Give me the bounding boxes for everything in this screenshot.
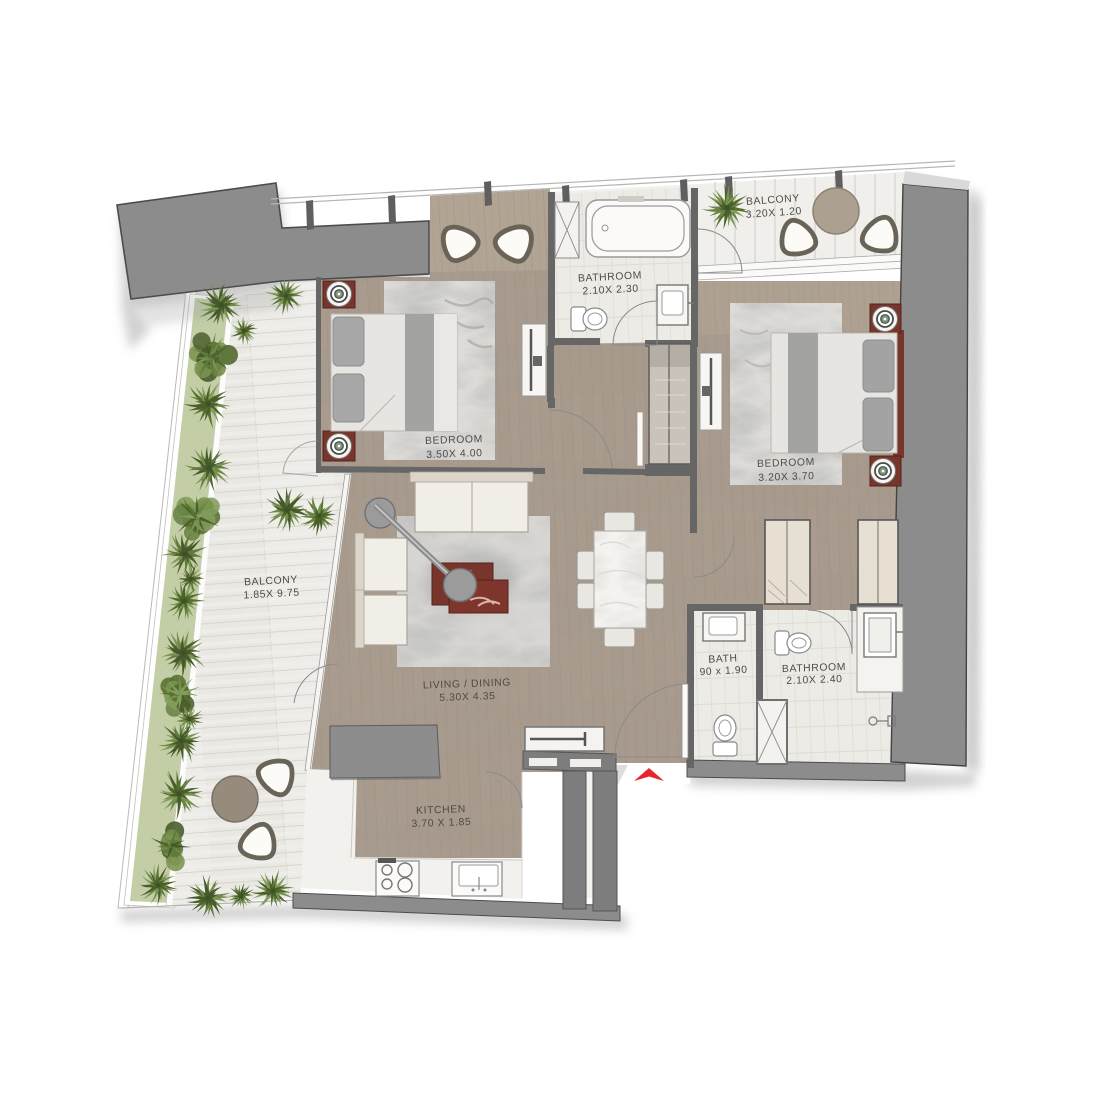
svg-text:BEDROOM: BEDROOM [425,434,483,447]
svg-text:2.10X 2.40: 2.10X 2.40 [786,674,843,687]
svg-text:3.70 X 1.85: 3.70 X 1.85 [411,817,471,830]
svg-text:BATHROOM: BATHROOM [782,662,846,675]
svg-text:3.20X 3.70: 3.20X 3.70 [758,471,815,484]
svg-text:3.50X 4.00: 3.50X 4.00 [426,448,483,461]
svg-text:BATH: BATH [708,653,738,666]
svg-text:BEDROOM: BEDROOM [757,457,815,470]
svg-text:5.30X 4.35: 5.30X 4.35 [439,691,496,704]
svg-text:KITCHEN: KITCHEN [416,804,466,817]
